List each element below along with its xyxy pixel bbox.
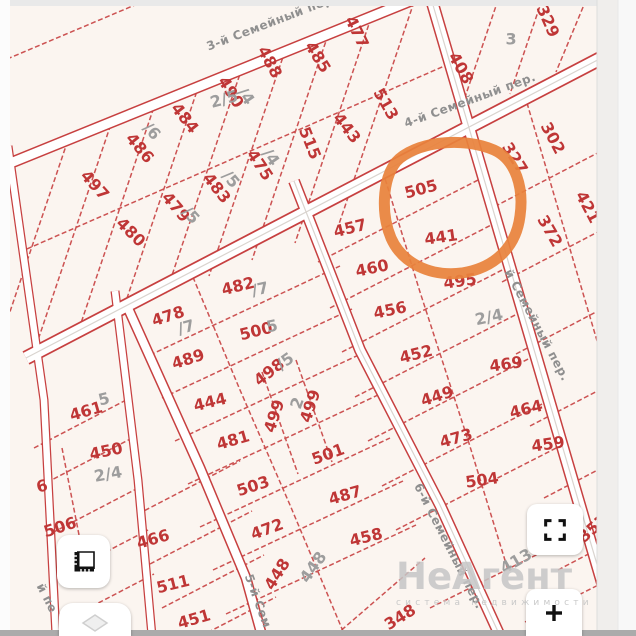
parcel-label-3: 3: [505, 30, 516, 49]
zoom-in-button[interactable]: [526, 589, 582, 636]
ruler-icon: [69, 547, 99, 577]
layers-button[interactable]: [59, 603, 131, 636]
measure-button[interactable]: [57, 535, 110, 588]
fullscreen-icon: [541, 516, 569, 544]
fullscreen-button[interactable]: [527, 504, 583, 555]
zoom-in-icon: [539, 598, 569, 628]
layers-icon: [80, 613, 110, 635]
map-viewport: 3-й Семейный пер.4-й Семейный пер.й Семе…: [0, 0, 636, 636]
